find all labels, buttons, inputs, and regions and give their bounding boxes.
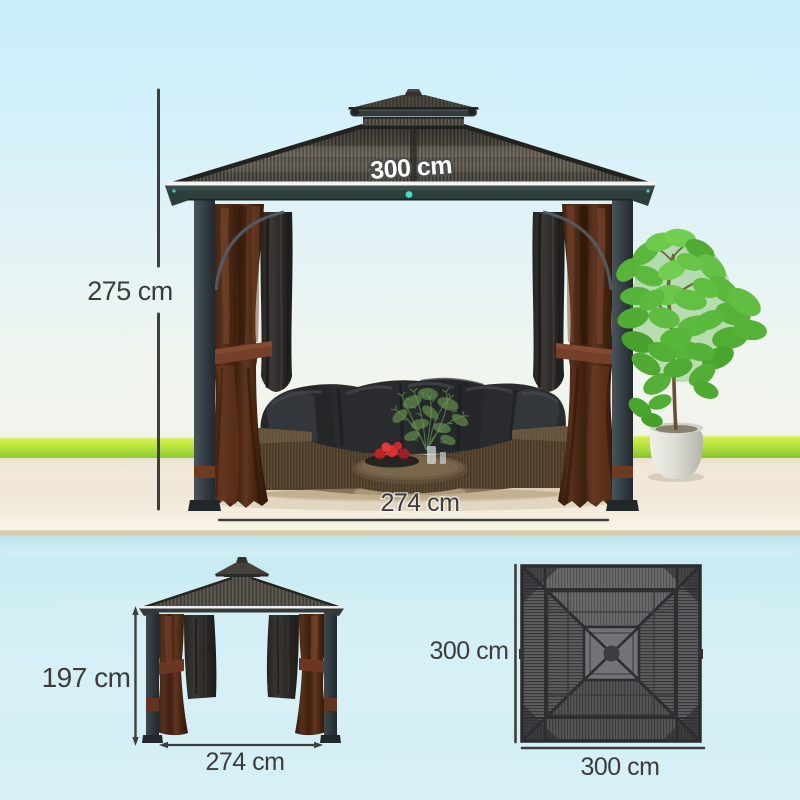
svg-text:300 cm: 300 cm [581,753,660,781]
svg-text:300 cm: 300 cm [430,637,509,665]
svg-text:197 cm: 197 cm [42,662,131,693]
svg-text:274 cm: 274 cm [381,489,460,517]
svg-text:274 cm: 274 cm [206,748,285,776]
svg-text:275 cm: 275 cm [87,276,173,306]
svg-text:300 cm: 300 cm [369,151,453,185]
